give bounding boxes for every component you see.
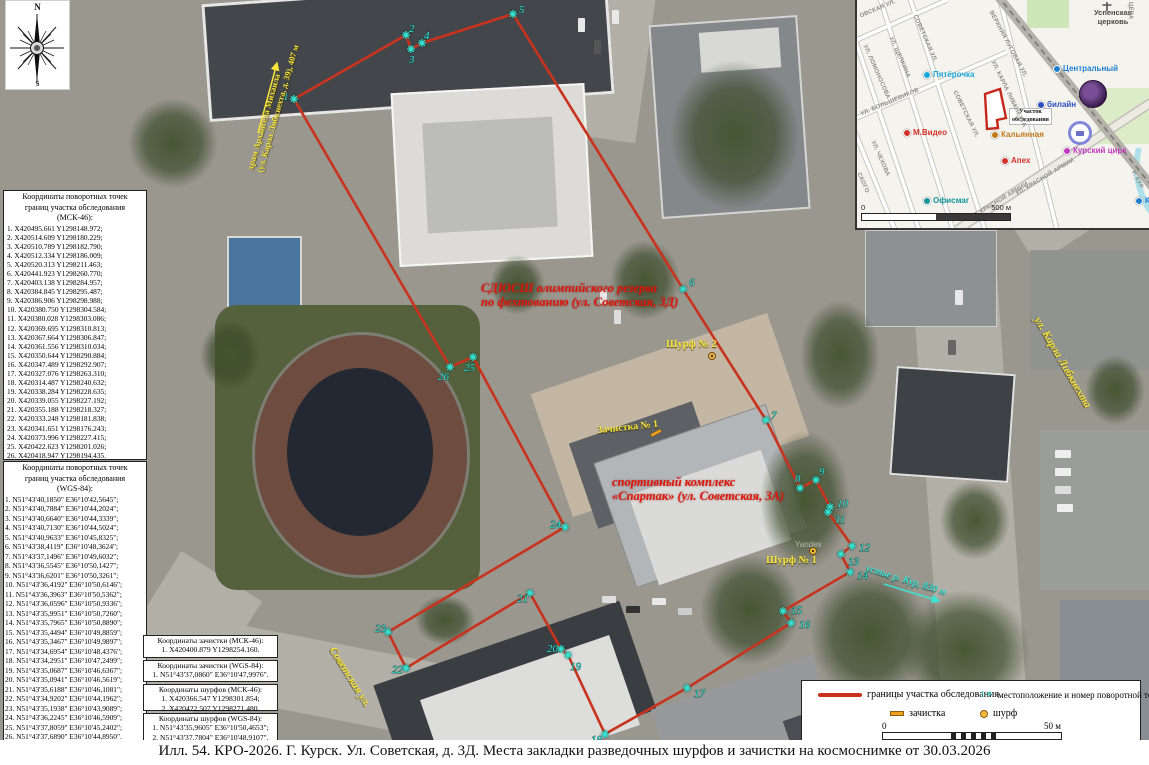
- list-item: (WGS-84):: [4, 484, 146, 495]
- inset-street-label: СОВЕТСКАЯ УЛ.: [952, 90, 980, 139]
- list-item: 20. N51°43'35,0941" E36°10'46,5619";: [4, 675, 146, 685]
- turning-point-number: 10: [837, 498, 849, 510]
- list-item: 3. N51°43'40,6640" E36°10'44,3339";: [4, 514, 146, 524]
- turning-point-24: 24: [550, 519, 569, 531]
- inset-poi-label: М.Видео: [903, 128, 947, 137]
- inset-street-label: УЛ. ЧЕХОВА: [870, 140, 891, 177]
- poi-icon: [1037, 101, 1045, 109]
- list-item: 25. N51°43'37,8059" E36°10'45,2402";: [4, 723, 146, 733]
- list-item: 13. N51°43'35,9951" E36°10'50,7260";: [4, 609, 146, 619]
- panel-zachistka-wgs84: Координаты зачистки (WGS-84): 1. N51°43'…: [143, 660, 278, 682]
- list-item: 18. N51°43'34,2951" E36°10'47,2499";: [4, 656, 146, 666]
- inset-labels: ОВСКАЯ УЛ.УЛ. ЛОМОНОСОВАУЛ. ЩЕПКИНАСОВЕТ…: [857, 0, 1149, 228]
- turning-point-11: 11: [824, 508, 845, 526]
- list-item: Координаты поворотных точек: [4, 192, 146, 203]
- list-item: 9. N51°43'36,6201" E36°10'50,3261";: [4, 571, 146, 581]
- inset-map: Успенская церковь Участок обследования О…: [855, 0, 1149, 230]
- panel-zachistka-msk46: Координаты зачистки (МСК-46): 1. X420400…: [143, 635, 278, 658]
- list-item: 16. X420347.489 Y1298292.907;: [4, 360, 146, 369]
- panel-shurf-msk46: Координаты шурфов (МСК-46): 1. X420366.5…: [143, 684, 278, 711]
- shurf-2-marker-center: [711, 355, 713, 357]
- zachistka-swatch: [890, 711, 904, 716]
- inset-street-label: УЛ. БОЛЬШЕВИКОВ: [860, 87, 920, 117]
- turning-point-12: 12: [848, 542, 871, 554]
- inset-street-label: УЛ. ЛОМОНОСОВА: [862, 44, 891, 100]
- panel-title: Координаты шурфов (МСК-46):: [144, 685, 277, 694]
- panel-coords-msk46: Координаты поворотных точекграниц участк…: [3, 190, 147, 460]
- list-item: 1. X420400.879 Y1298254.160.: [144, 645, 277, 654]
- scale-end: 50 м: [1044, 721, 1061, 731]
- turning-point-15: 15: [779, 605, 803, 617]
- scale-bar: [861, 213, 1011, 221]
- list-item: 12. N51°43'36,0596" E36°10'50,9336";: [4, 599, 146, 609]
- list-item: 2. X420514.609 Y1298180.229;: [4, 233, 146, 242]
- list-item: 5. X420520.313 Y1298211.463;: [4, 260, 146, 269]
- turning-point-number: 24: [550, 519, 562, 531]
- list-item: 11. X420380.028 Y1298303.086;: [4, 314, 146, 323]
- legend-shurf-label: шурф: [993, 708, 1017, 719]
- list-item: границ участка обследования: [4, 474, 146, 485]
- turning-point-13: 13: [837, 550, 860, 568]
- list-item: 17. N51°43'34,6954" E36°10'48,4376";: [4, 647, 146, 657]
- list-item: 23. X420341.651 Y1298176.243;: [4, 424, 146, 433]
- turning-point-swatch: 1✳: [980, 689, 993, 700]
- scale-bar: [882, 732, 1062, 740]
- label-line: по фехтованию (ул. Советская, 3Д): [481, 295, 678, 309]
- label-shurf-1: Шурф № 1: [766, 555, 817, 566]
- figure-caption: Илл. 54. КРО-2026. Г. Курск. Ул. Советск…: [0, 740, 1149, 765]
- legend-zachistka-label: зачистка: [909, 708, 945, 719]
- list-item: 13. X420367.664 Y1298306.847;: [4, 333, 146, 342]
- shurf-1-marker-center: [812, 550, 814, 552]
- list-item: 1. X420366.547 Y1298301.854;: [144, 694, 277, 703]
- list-item: 10. N51°43'36,4192" E36°10'50,6146";: [4, 580, 146, 590]
- inset-street-label: ЦЕВА: [1127, 2, 1133, 20]
- label-line: спортивный комплекс: [612, 475, 784, 489]
- inset-poi-label: Калина: [1135, 196, 1149, 205]
- label-building-sdyush: СДЮСШ олимпийского резерва по фехтованию…: [481, 281, 678, 309]
- inset-poi-label: Курский цирк: [1063, 146, 1126, 155]
- compass-star: [6, 1, 69, 89]
- inset-poi-label: Кальянная: [991, 130, 1044, 139]
- list-item: 3. X420510.789 Y1298182.790;: [4, 242, 146, 251]
- inset-street-label: УЛ. ЩЕПКИНА: [888, 36, 912, 79]
- inset-poi-label: Пятёрочка: [923, 70, 974, 79]
- list-item: 16. N51°43'35,3467" E36°10'49,9897";: [4, 637, 146, 647]
- list-item: 9. X420386.906 Y1298298.988;: [4, 296, 146, 305]
- scale-start: 0: [882, 721, 887, 731]
- list-item: 14. X420361.556 Y1298310.034;: [4, 342, 146, 351]
- inset-poi-label: Апех: [1001, 156, 1030, 165]
- list-item: 15. N51°43'35,4494" E36°10'49,8859";: [4, 628, 146, 638]
- compass-rose: N S: [5, 0, 70, 90]
- turning-point-number: 20: [547, 643, 559, 655]
- turning-point-number: 22: [392, 664, 404, 676]
- turning-point-number: 17: [694, 688, 706, 700]
- list-item: 24. N51°43'36,2245" E36°10'46,5909";: [4, 713, 146, 723]
- turning-point-number: 6: [689, 277, 695, 289]
- list-item: 19. X420338.284 Y1298228.635;: [4, 387, 146, 396]
- turning-point-number: 7: [771, 410, 777, 422]
- list-item: 6. N51°43'38,4119" E36°10'48,3624";: [4, 542, 146, 552]
- list-item: 22. X420333.248 Y1298181.838;: [4, 414, 146, 423]
- list-item: 12. X420369.695 Y1298310.813;: [4, 324, 146, 333]
- coordinate-list: 1. X420400.879 Y1298254.160.: [144, 645, 277, 654]
- list-item: 4. X420512.334 Y1298186.009;: [4, 251, 146, 260]
- turning-point-number: 15: [791, 605, 803, 617]
- list-item: 11. N51°43'36,3963" E36°10'50,5362";: [4, 590, 146, 600]
- legend-point-label: местоположение и номер поворотной точки: [998, 690, 1149, 700]
- list-item: 24. X420373.996 Y1298227.415;: [4, 433, 146, 442]
- poi-icon: [903, 129, 911, 137]
- list-item: границ участка обследования: [4, 203, 146, 214]
- list-item: (МСК-46):: [4, 213, 146, 224]
- turning-point-number: 9: [819, 466, 825, 478]
- list-item: 6. X420441.923 Y1298260.770;: [4, 269, 146, 278]
- list-item: 7. X420403.138 Y1298284.957;: [4, 278, 146, 287]
- compass-south-label: S: [6, 80, 69, 88]
- list-item: 23. N51°43'35,1938" E36°10'43,9089";: [4, 704, 146, 714]
- turning-point-number: 23: [375, 623, 387, 635]
- scale-start: 0: [861, 203, 865, 212]
- label-line: СДЮСШ олимпийского резерва: [481, 281, 678, 295]
- list-item: 7. N51°43'37,1496" E36°10'49,6032";: [4, 552, 146, 562]
- list-item: 21. X420355.188 Y1298218.327;: [4, 405, 146, 414]
- turning-point-4: 4: [418, 30, 430, 47]
- list-item: 15. X420350.644 Y1298290.884;: [4, 351, 146, 360]
- list-item: 14. N51°43'35,7965" E36°10'50,8890";: [4, 618, 146, 628]
- panel-title: Координаты поворотных точекграниц участк…: [4, 463, 146, 495]
- turning-point-19: 19: [564, 651, 582, 673]
- turning-point-number: 11: [835, 514, 845, 526]
- panel-title: Координаты зачистки (МСК-46):: [144, 636, 277, 645]
- list-item: 19. N51°43'35,0687" E36°10'46,6367";: [4, 666, 146, 676]
- panel-title: Координаты зачистки (WGS-84):: [144, 661, 277, 670]
- coordinate-list: 1. N51°43'40,1850" E36°10'42,5645";2. N5…: [4, 495, 146, 742]
- list-item: 25. X420422.623 Y1298201.026;: [4, 442, 146, 451]
- poi-icon: [1135, 197, 1143, 205]
- coordinate-list: 1. X420495.661 Y1298148.972;2. X420514.6…: [4, 224, 146, 460]
- label-line: «Спартак» (ул. Советская, 3А): [612, 489, 784, 503]
- inset-street-label: Р. КУР: [1130, 170, 1144, 190]
- inset-street-label: ОВСКАЯ УЛ.: [859, 0, 897, 20]
- turning-point-26: 26: [438, 363, 454, 383]
- list-item: 1. N51°43'40,1850" E36°10'42,5645";: [4, 495, 146, 505]
- panel-coords-wgs84: Координаты поворотных точекграниц участк…: [3, 461, 147, 742]
- list-item: 5. N51°43'40,9633" E36°10'45,8325";: [4, 533, 146, 543]
- list-item: 20. X420339.055 Y1298227.192;: [4, 396, 146, 405]
- turning-point-number: 5: [519, 4, 525, 16]
- list-item: 21. N51°43'35,6188" E36°10'46,1081";: [4, 685, 146, 695]
- turning-point-number: 13: [848, 556, 860, 568]
- boundary-line-swatch: [818, 693, 862, 697]
- coordinate-list: 1. N51°43'37,0860" E36°10'47,9976".: [144, 670, 277, 679]
- list-item: 8. X420384.845 Y1298295.487;: [4, 287, 146, 296]
- turning-point-17: 17: [683, 684, 706, 700]
- turning-point-5: 5: [509, 4, 525, 18]
- turning-point-number: 26: [438, 371, 450, 383]
- poi-icon: [991, 131, 999, 139]
- scale-end: 500 м: [991, 203, 1011, 212]
- inset-poi-label: Центральный: [1053, 64, 1118, 73]
- poi-icon: [1001, 157, 1009, 165]
- turning-point-10: 10: [826, 498, 849, 511]
- list-item: Координаты поворотных точек: [4, 463, 146, 474]
- turning-point-number: 2: [409, 23, 415, 35]
- turning-point-number: 25: [464, 362, 476, 374]
- turning-point-20: 20: [547, 643, 565, 655]
- coordinate-list: 1. X420366.547 Y1298301.854;2. X420422.5…: [144, 694, 277, 712]
- turning-point-number: 12: [859, 542, 871, 554]
- yandex-watermark: Yandex: [795, 540, 822, 549]
- list-item: 10. X420380.750 Y1298304.584;: [4, 305, 146, 314]
- turning-point-number: 3: [408, 54, 415, 66]
- turning-point-22: 22: [392, 664, 410, 676]
- legend: границы участка обследования 1✳ местопол…: [801, 680, 1141, 743]
- list-item: 1. N51°43'35,9605" E36°10'50,4653";: [144, 723, 277, 732]
- panel-shurf-wgs84: Координаты шурфов (WGS-84): 1. N51°43'35…: [143, 713, 278, 741]
- poi-icon: [1063, 147, 1071, 155]
- turning-point-23: 23: [375, 623, 392, 636]
- inset-scale-bar: 0 500 м: [861, 203, 1011, 221]
- turning-point-number: 19: [570, 661, 582, 673]
- turning-point-9: 9: [812, 466, 825, 484]
- inset-poi-label: билайн: [1037, 100, 1076, 109]
- turning-point-number: 21: [517, 593, 528, 605]
- poi-icon: [923, 71, 931, 79]
- inset-street-label: СКОГО: [856, 172, 870, 194]
- turning-point-number: 4: [424, 30, 430, 42]
- label-shurf-2: Шурф № 2: [666, 339, 717, 350]
- turning-point-18: 18: [591, 730, 609, 740]
- list-item: 17. X420327.076 Y1298263.310;: [4, 369, 146, 378]
- list-item: 2. N51°43'40,7884" E36°10'44,2024";: [4, 504, 146, 514]
- inset-street-label: СОВЕТСКАЯ УЛ.: [912, 14, 938, 63]
- turning-point-16: 16: [787, 619, 811, 631]
- list-item: 1. X420495.661 Y1298148.972;: [4, 224, 146, 233]
- list-item: 4. N51°43'40,7130" E36°10'44,5024";: [4, 523, 146, 533]
- turning-point-2: 2: [402, 23, 415, 39]
- list-item: 8. N51°43'36,5545" E36°10'50,1427";: [4, 561, 146, 571]
- list-item: 18. X420314.487 Y1298240.632;: [4, 378, 146, 387]
- turning-point-number: 8: [795, 473, 801, 485]
- label-building-spartak: спортивный комплекс «Спартак» (ул. Совет…: [612, 475, 784, 503]
- shurf-swatch: [980, 710, 988, 718]
- figure: 1234567891011121314151617181920212223242…: [0, 0, 1149, 765]
- turning-point-8: 8: [795, 473, 804, 492]
- list-item: 22. N51°43'34,9202" E36°10'44,1962";: [4, 694, 146, 704]
- list-item: 2. X420422.507 Y1298271.480.: [144, 704, 277, 713]
- panel-title: Координаты шурфов (WGS-84):: [144, 714, 277, 723]
- panel-title: Координаты поворотных точекграниц участк…: [4, 192, 146, 224]
- poi-icon: [1053, 65, 1061, 73]
- list-item: 26. X420418.947 Y1298194.435.: [4, 451, 146, 460]
- list-item: 1. N51°43'37,0860" E36°10'47,9976".: [144, 670, 277, 679]
- turning-point-number: 16: [799, 619, 811, 631]
